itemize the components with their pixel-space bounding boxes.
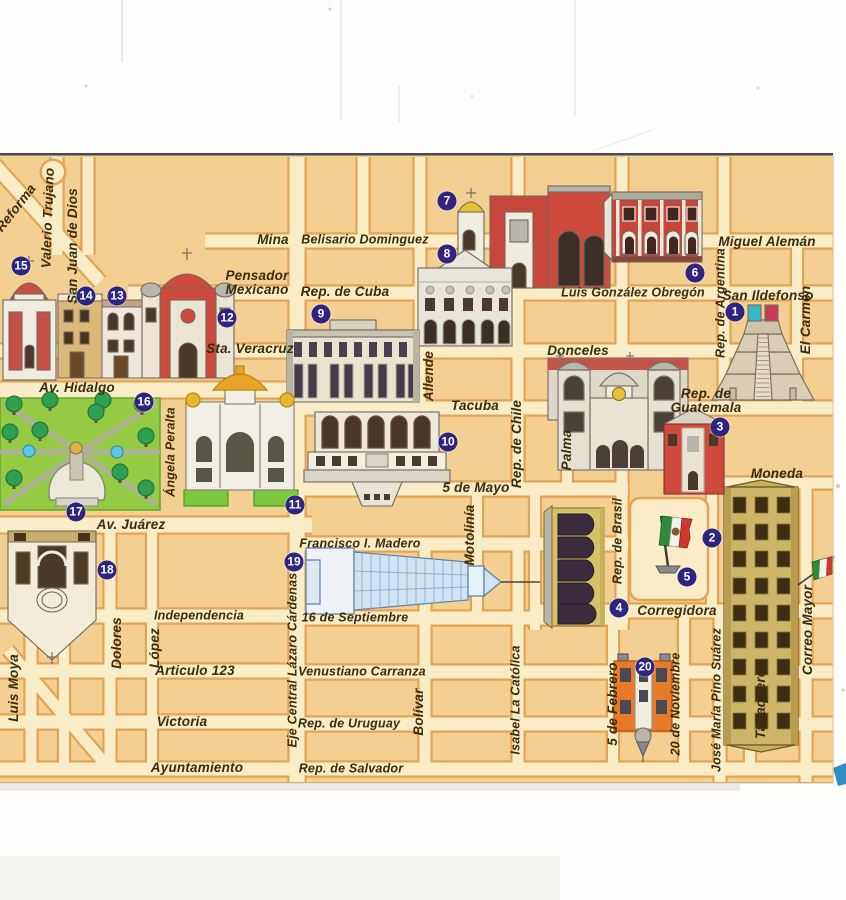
landmark-marker-2: 2 (703, 529, 722, 548)
scanned-tourist-map-page: ReformaValerio TrujanoSan Juan de DiosMi… (0, 0, 846, 900)
landmark-marker-18: 18 (98, 561, 117, 580)
landmark-marker-17: 17 (67, 503, 86, 522)
landmark-marker-5: 5 (678, 568, 697, 587)
landmark-marker-4: 4 (610, 599, 629, 618)
landmark-marker-7: 7 (438, 192, 457, 211)
landmark-markers-layer: 1234567891011121314151617181920 (0, 0, 846, 900)
landmark-marker-8: 8 (438, 245, 457, 264)
landmark-marker-1: 1 (726, 303, 745, 322)
landmark-marker-20: 20 (636, 658, 655, 677)
landmark-marker-19: 19 (285, 553, 304, 572)
landmark-marker-6: 6 (686, 264, 705, 283)
landmark-marker-3: 3 (711, 418, 730, 437)
landmark-marker-16: 16 (135, 393, 154, 412)
landmark-marker-11: 11 (286, 496, 305, 515)
landmark-marker-13: 13 (108, 287, 127, 306)
landmark-marker-10: 10 (439, 433, 458, 452)
landmark-marker-15: 15 (12, 257, 31, 276)
landmark-marker-14: 14 (77, 287, 96, 306)
landmark-marker-12: 12 (218, 309, 237, 328)
landmark-marker-9: 9 (312, 305, 331, 324)
